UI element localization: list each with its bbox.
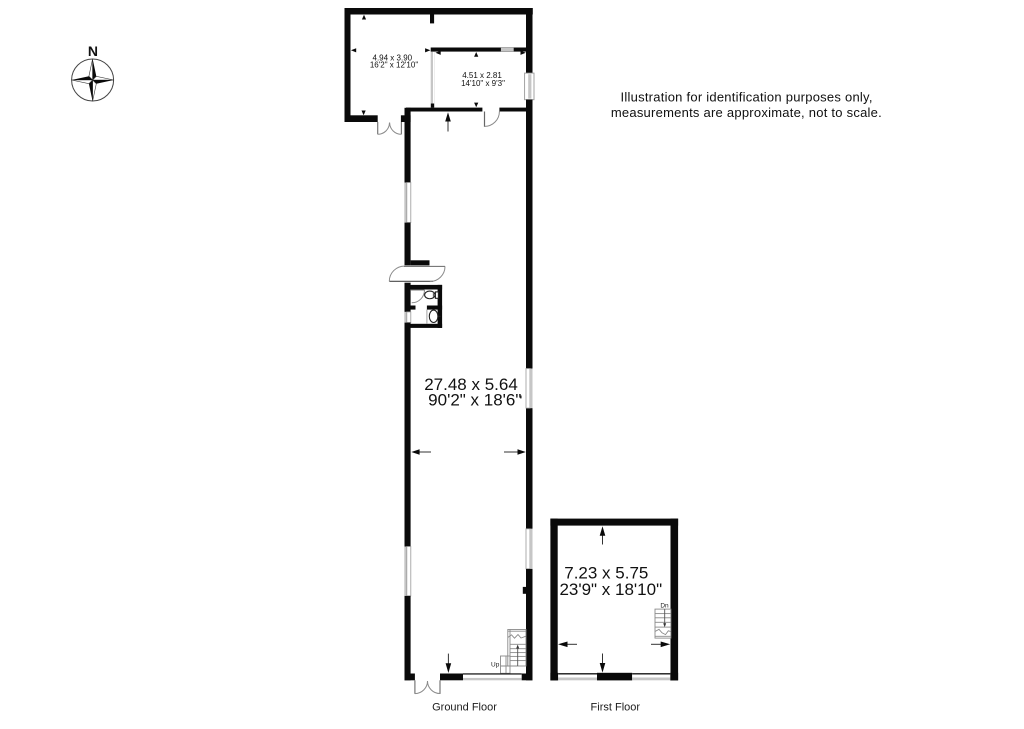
svg-text:Illustration for identificatio: Illustration for identification purposes…	[621, 89, 873, 104]
svg-text:90'2" x 18'6": 90'2" x 18'6"	[428, 391, 521, 410]
svg-text:Up: Up	[491, 662, 500, 669]
svg-text:16'2" x 12'10": 16'2" x 12'10"	[370, 61, 418, 70]
svg-text:23'9" x 18'10": 23'9" x 18'10"	[559, 580, 662, 599]
svg-text:Dn: Dn	[660, 602, 669, 609]
svg-text:Ground Floor: Ground Floor	[432, 701, 497, 713]
svg-text:First Floor: First Floor	[591, 701, 641, 713]
svg-text:14'10" x 9'3": 14'10" x 9'3"	[461, 79, 505, 88]
svg-text:measurements are approximate,: measurements are approximate, not to sca…	[611, 105, 882, 120]
svg-text:N: N	[88, 43, 98, 59]
